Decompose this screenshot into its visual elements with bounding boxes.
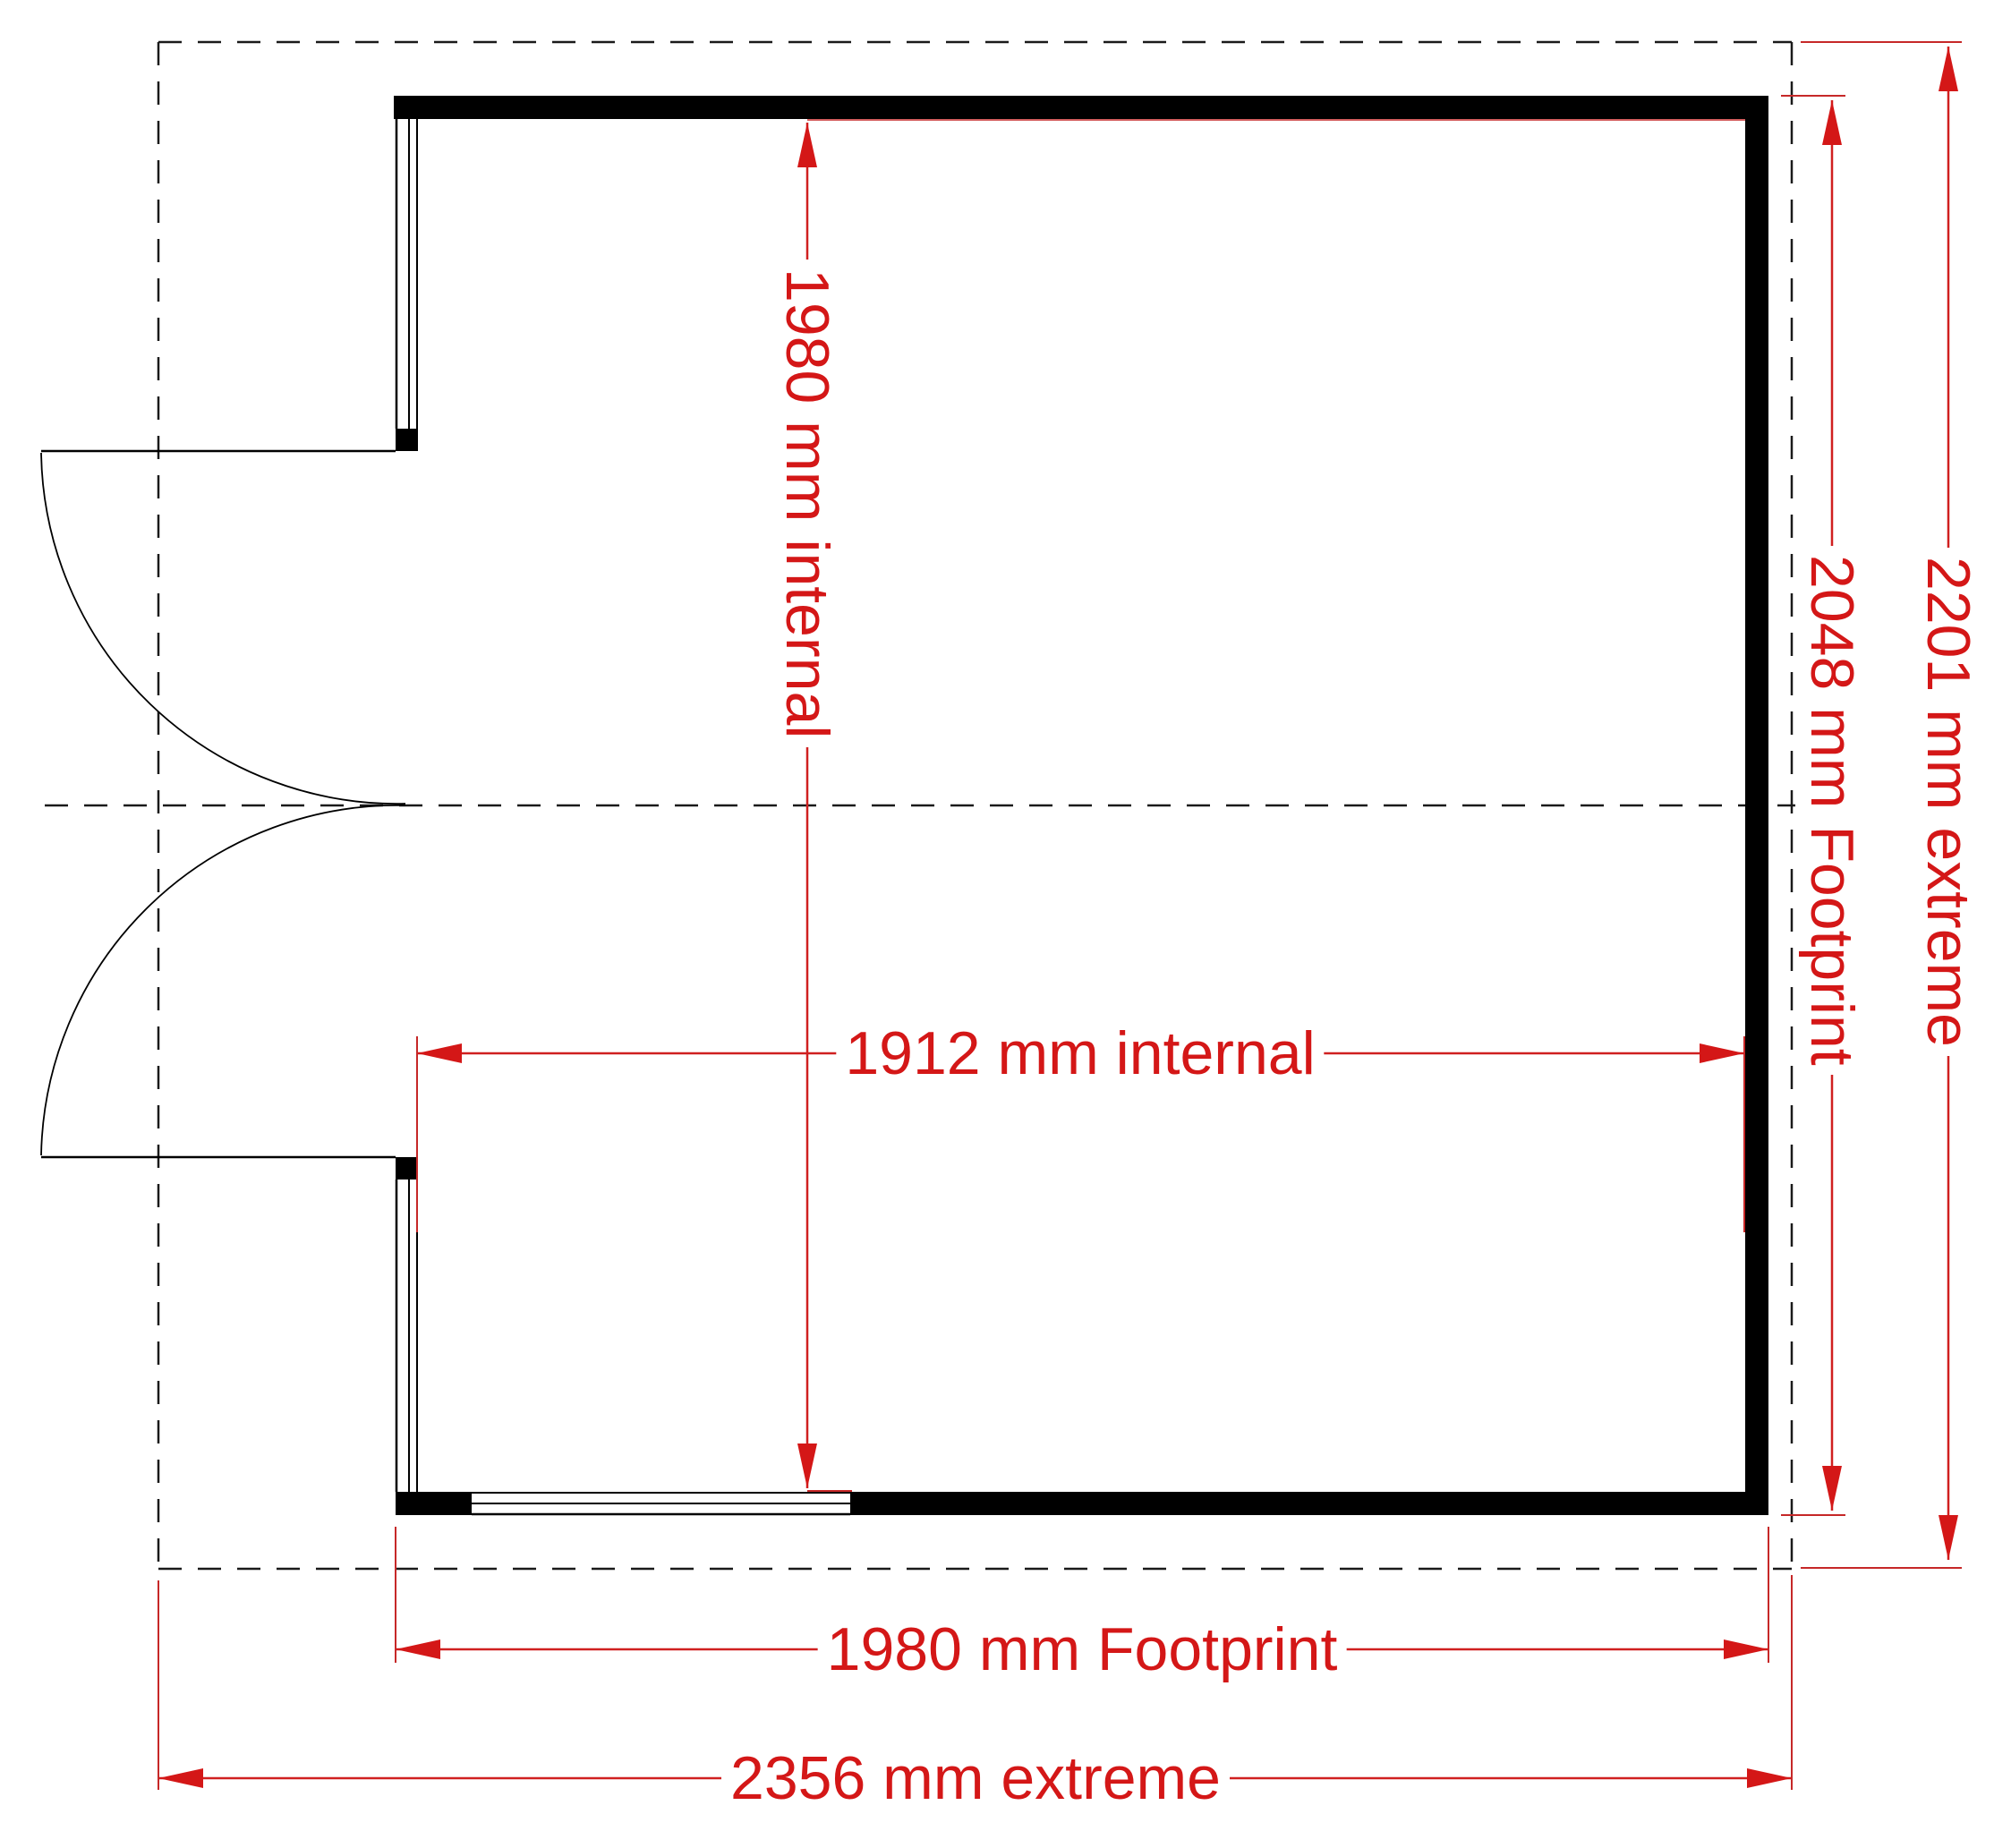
arrow-left-extreme-width — [158, 1768, 203, 1788]
arrow-up-internal-depth — [797, 123, 817, 167]
arrow-right-internal-width — [1700, 1043, 1744, 1063]
floor-plan: 1980 mm internal 1912 mm internal 2048 m… — [0, 0, 1994, 1848]
arrow-right-footprint-width — [1724, 1639, 1768, 1659]
wall-bottom — [850, 1492, 1768, 1515]
dimension-arrows — [158, 47, 1958, 1788]
arrow-left-internal-width — [417, 1043, 462, 1063]
dim-label-extreme-width: 2356 mm extreme — [721, 1746, 1230, 1810]
double-doors — [41, 451, 405, 1157]
door-swing-arc-top — [41, 453, 405, 804]
arrow-up-extreme-depth — [1939, 47, 1958, 91]
dim-label-internal-width: 1912 mm internal — [836, 1021, 1324, 1086]
door-swing-arc-bottom — [41, 805, 405, 1155]
wall-bottom-left-corner — [396, 1492, 472, 1515]
dim-label-internal-depth: 1980 mm internal — [775, 260, 839, 747]
dim-label-footprint-width: 1980 mm Footprint — [818, 1617, 1347, 1682]
door-jamb-bottom — [396, 1157, 418, 1179]
floor-plan-drawing — [0, 0, 1994, 1848]
arrow-left-footprint-width — [396, 1639, 440, 1659]
arrow-up-footprint-depth — [1822, 100, 1842, 145]
arrow-right-extreme-width — [1747, 1768, 1792, 1788]
door-jamb-top — [396, 429, 418, 451]
wall-right — [1745, 96, 1768, 1515]
dimension-lines — [158, 47, 1948, 1778]
arrow-down-footprint-depth — [1822, 1466, 1842, 1511]
arrow-down-internal-depth — [797, 1443, 817, 1488]
extension-lines — [158, 42, 1962, 1790]
wall-top — [394, 96, 1768, 119]
arrow-down-extreme-depth — [1939, 1515, 1958, 1560]
dim-label-extreme-depth: 2201 mm extreme — [1916, 548, 1981, 1056]
extreme-boundary-dashed — [45, 42, 1795, 1572]
dim-label-footprint-depth: 2048 mm Footprint — [1800, 546, 1864, 1075]
